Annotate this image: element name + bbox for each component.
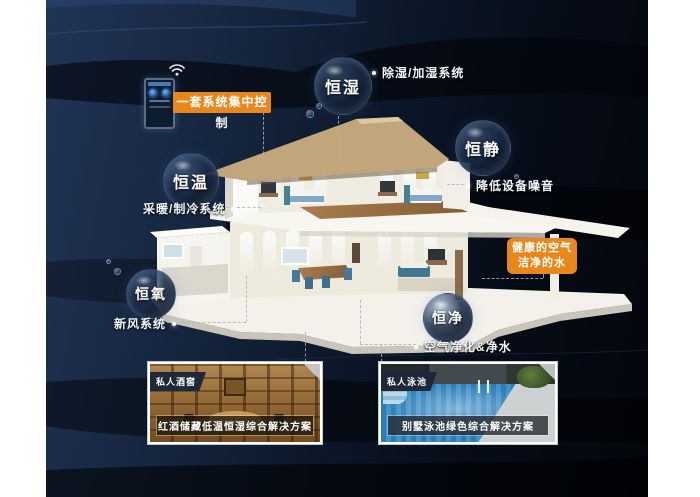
card-pool: 私人泳池 别墅泳池绿色综合解决方案 [379, 362, 557, 444]
connector-dot [231, 207, 235, 211]
wine-caption: 红酒储藏低温恒湿综合解决方案 [157, 416, 313, 435]
mini-bubble-icon [106, 259, 111, 264]
benefit-line2: 洁净的水 [507, 256, 577, 271]
feature-label-dehumidify: 除湿/加湿系统 [372, 64, 464, 81]
pool-image: 私人泳池 别墅泳池绿色综合解决方案 [381, 364, 555, 442]
corner-ribbon-icon [539, 364, 555, 380]
wifi-icon [168, 63, 186, 77]
connector-line [167, 322, 246, 323]
feature-text: 采暖/制冷系统 [143, 200, 225, 217]
connector-dot [172, 322, 176, 326]
connector-line [305, 332, 306, 362]
control-panel-row [149, 100, 170, 102]
pool-badge: 私人泳池 [381, 372, 437, 391]
control-panel-header [148, 82, 171, 86]
bubble-hengshi: 恒湿 [314, 57, 372, 115]
feature-label-heating: 采暖/制冷系统 [143, 200, 235, 217]
central-control-label: 一套系统集中控制 [173, 92, 271, 113]
feature-label-purify: 空气净化&净水 [414, 338, 512, 355]
bubble-hengyang: 恒氧 [126, 269, 176, 319]
wine-badge: 私人酒窖 [150, 372, 206, 391]
connector-line [482, 278, 543, 279]
benefit-line1: 健康的空气 [507, 241, 577, 256]
connector-dot [466, 184, 470, 188]
connector-line [246, 276, 247, 322]
bubble-hengjing: 恒静 [455, 120, 511, 176]
bubble-label: 恒静 [465, 136, 501, 160]
card-wine-cellar: 私人酒窖 红酒储藏低温恒湿综合解决方案 [148, 362, 322, 444]
connector-dot [372, 71, 376, 75]
humidity-dial-icon [162, 89, 170, 97]
connector-line [360, 300, 361, 344]
smart-home-poster: 一套系统集中控制 恒湿 恒静 恒温 恒氧 恒净 除湿/加湿系统 降低设备噪音 采… [0, 0, 700, 497]
bubble-label: 恒净 [432, 308, 464, 328]
feature-text: 空气净化&净水 [424, 338, 512, 355]
wine-picture-frame [224, 378, 246, 396]
connector-line [263, 112, 264, 164]
mini-bubble-icon [114, 268, 121, 275]
feature-label-freshair: 新风系统 [114, 315, 176, 332]
bubble-label: 恒氧 [135, 284, 167, 304]
mini-bubble-icon [316, 103, 322, 109]
feature-text: 降低设备噪音 [476, 177, 554, 194]
thermostat-dial-icon [149, 89, 157, 97]
feature-text: 除湿/加湿系统 [382, 64, 464, 81]
benefit-box: 健康的空气 洁净的水 [507, 238, 577, 274]
connector-line [338, 116, 339, 162]
corner-ribbon-icon [304, 364, 320, 380]
bubble-hengjingshui: 恒净 [423, 293, 473, 343]
bubble-label: 恒温 [173, 169, 209, 193]
connector-line [360, 344, 416, 345]
connector-line [381, 344, 382, 362]
mini-bubble-icon [306, 110, 314, 118]
control-panel-device [144, 78, 175, 129]
connector-dot [414, 345, 418, 349]
bubble-label: 恒湿 [325, 74, 361, 98]
feature-label-noise: 降低设备噪音 [466, 177, 554, 194]
wine-cellar-image: 私人酒窖 红酒储藏低温恒湿综合解决方案 [150, 364, 320, 442]
pool-caption: 别墅泳池绿色综合解决方案 [388, 416, 548, 435]
feature-text: 新风系统 [114, 315, 166, 332]
pool-ladder-icon [478, 380, 489, 393]
control-panel-row [149, 106, 170, 108]
